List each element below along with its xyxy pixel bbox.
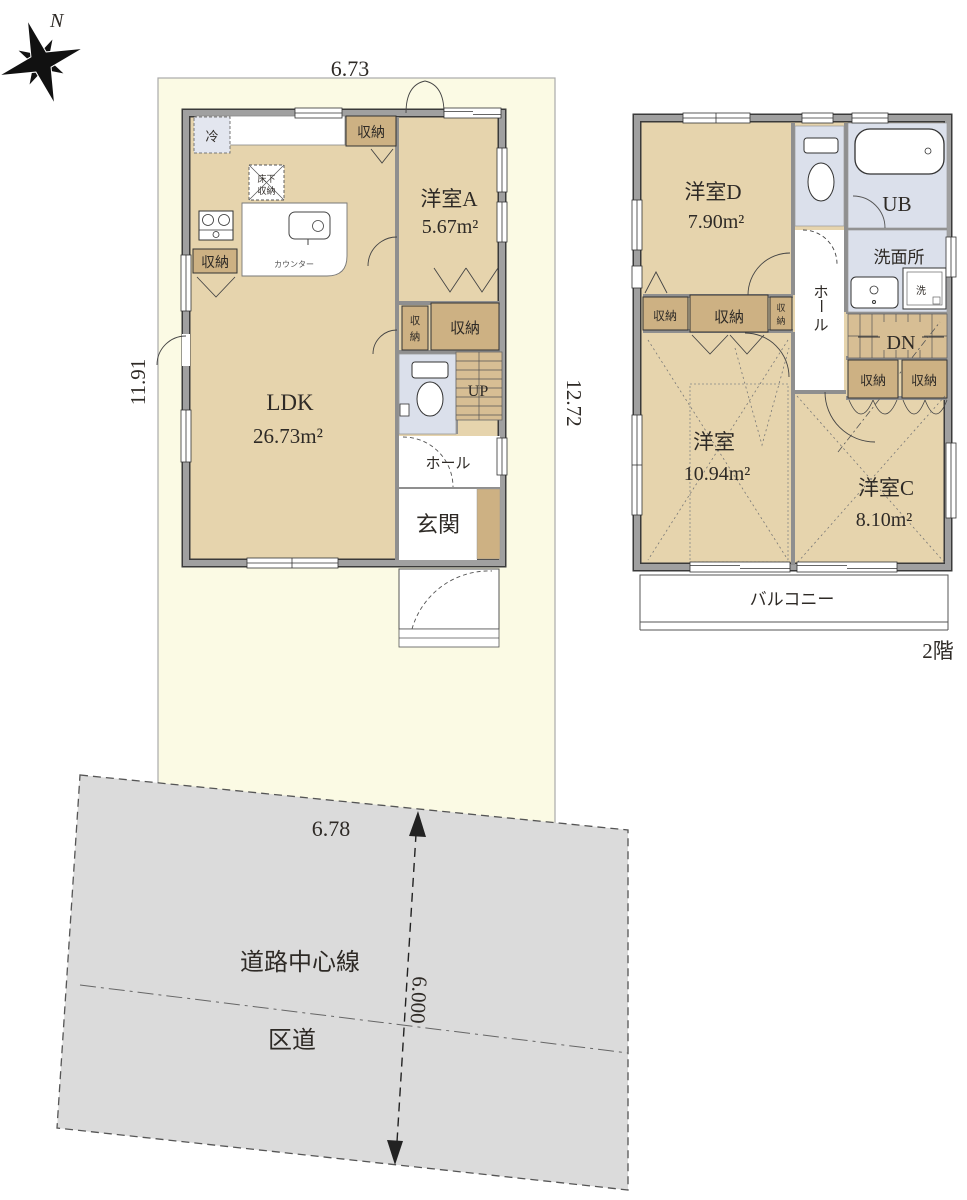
room-a-name: 洋室A — [420, 187, 478, 211]
underfloor-storage-icon: 床下 収納 — [249, 165, 284, 200]
floor2-label: 2階 — [922, 639, 954, 663]
paper-holder-icon — [400, 404, 409, 416]
entrance-label: 玄関 — [416, 512, 460, 537]
svg-text:冷: 冷 — [205, 129, 218, 144]
svg-text:納: 納 — [776, 315, 785, 326]
washing-machine-icon: 洗 — [903, 268, 946, 309]
svg-text:収: 収 — [410, 315, 421, 327]
svg-text:収納: 収納 — [911, 373, 937, 388]
balcony-label: バルコニー — [750, 590, 835, 609]
floor1-entrance: 玄関 — [399, 489, 500, 560]
svg-text:収納: 収納 — [357, 125, 385, 141]
svg-text:収納: 収納 — [450, 320, 480, 337]
stairs-up-label: UP — [468, 383, 489, 400]
svg-text:収納: 収納 — [257, 185, 275, 196]
ldk-area: 26.73m² — [253, 424, 323, 448]
stove-icon — [199, 211, 233, 240]
floor2-toilet-room — [795, 126, 844, 226]
room-d-name: 洋室D — [684, 180, 741, 204]
svg-text:収納: 収納 — [714, 309, 744, 326]
floor1-hall: ホール — [399, 436, 500, 487]
svg-text:収納: 収納 — [201, 255, 229, 271]
floor2-balcony: バルコニー — [640, 575, 948, 630]
compass-north-label: N — [49, 10, 65, 32]
kitchen-counter: カウンター — [242, 203, 347, 276]
washbasin-icon — [851, 277, 898, 308]
entrance-porch — [399, 569, 499, 647]
svg-text:収: 収 — [776, 302, 785, 313]
svg-text:ル: ル — [813, 318, 828, 334]
road-parcel: 6.78 6.000 道路中心線 区道 — [57, 775, 628, 1190]
floor1-storage-mid-small: 収 納 — [402, 306, 428, 350]
floor2-bathroom: UB — [848, 123, 947, 228]
road-width-top-label: 6.78 — [312, 816, 351, 841]
room-center-area: 10.94m² — [684, 463, 751, 485]
floor1-top-dimension: 6.73 — [331, 56, 370, 81]
hall-label: ホール — [425, 456, 470, 472]
floor1-stairs: UP — [456, 352, 502, 420]
room-a-area: 5.67m² — [422, 216, 479, 238]
floor2-hall-label: ホ ー ル — [812, 285, 829, 334]
floor2-washroom: 洗面所 洗 — [848, 230, 947, 312]
svg-text:収納: 収納 — [653, 309, 677, 323]
road-type-label: 区道 — [268, 1027, 316, 1054]
road-width-vertical-label: 6.000 — [406, 976, 432, 1024]
svg-text:洗: 洗 — [916, 285, 926, 297]
counter-label: カウンター — [274, 260, 314, 269]
svg-text:収納: 収納 — [860, 373, 886, 388]
bath-label: UB — [882, 192, 911, 216]
floor1-storage-mid-large: 収納 — [431, 303, 499, 350]
road-centerline-label: 道路中心線 — [240, 949, 360, 976]
room-c-name: 洋室C — [858, 476, 914, 500]
floorplan-canvas: 6.78 6.000 道路中心線 区道 N 6.73 11.91 12.72 — [0, 0, 967, 1200]
room-d-area: 7.90m² — [688, 211, 745, 233]
floor1-right-dimension: 12.72 — [562, 379, 586, 426]
ldk-name: LDK — [266, 390, 314, 415]
floor1-toilet-room — [399, 354, 456, 434]
svg-text:ー: ー — [812, 298, 828, 313]
svg-text:納: 納 — [410, 330, 421, 343]
refrigerator-icon: 冷 — [194, 117, 230, 153]
washroom-label: 洗面所 — [874, 248, 925, 267]
floor2-plan: UB 洗面所 洗 — [632, 113, 956, 663]
room-c-area: 8.10m² — [856, 509, 913, 531]
svg-text:床下: 床下 — [257, 173, 275, 184]
floorplan-page: { "compass": { "north_label": "N" }, "fl… — [0, 0, 967, 1200]
floor1-left-dimension: 11.91 — [126, 359, 150, 405]
compass-rose-icon: N — [0, 7, 96, 118]
stairs-down-label: DN — [887, 332, 916, 354]
room-center-name: 洋室 — [693, 430, 735, 454]
